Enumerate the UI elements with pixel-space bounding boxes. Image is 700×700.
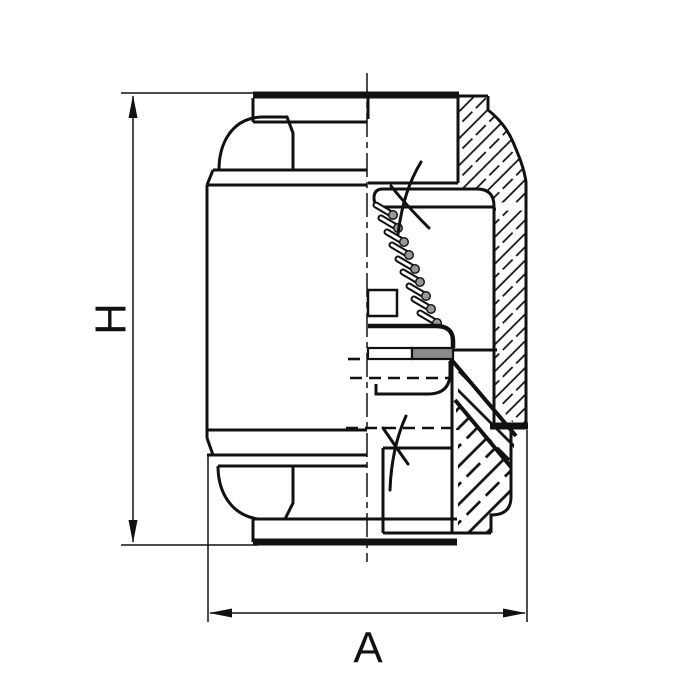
seal-ring (412, 348, 453, 359)
disc-plate (368, 326, 453, 348)
technical-drawing-canvas: H A (0, 0, 700, 700)
dimension-label-h: H (87, 303, 136, 335)
spring (376, 205, 441, 327)
dimension-label-a: A (353, 624, 383, 673)
check-valve-section-drawing: H A (0, 0, 700, 700)
dimension-h: H (87, 93, 259, 545)
bottom-hex-nut (218, 466, 367, 519)
arrowhead-right (503, 609, 526, 618)
top-hex-nut (219, 96, 368, 170)
union-nut-joint-gap (496, 203, 525, 211)
arrowhead-down (129, 520, 138, 543)
arrowhead-left (209, 609, 232, 618)
spring-coil (376, 205, 441, 327)
disc-stem (368, 290, 397, 316)
valve-external-view (207, 95, 488, 542)
arrowhead-up (129, 95, 138, 118)
section-hatch-fills (456, 96, 526, 533)
